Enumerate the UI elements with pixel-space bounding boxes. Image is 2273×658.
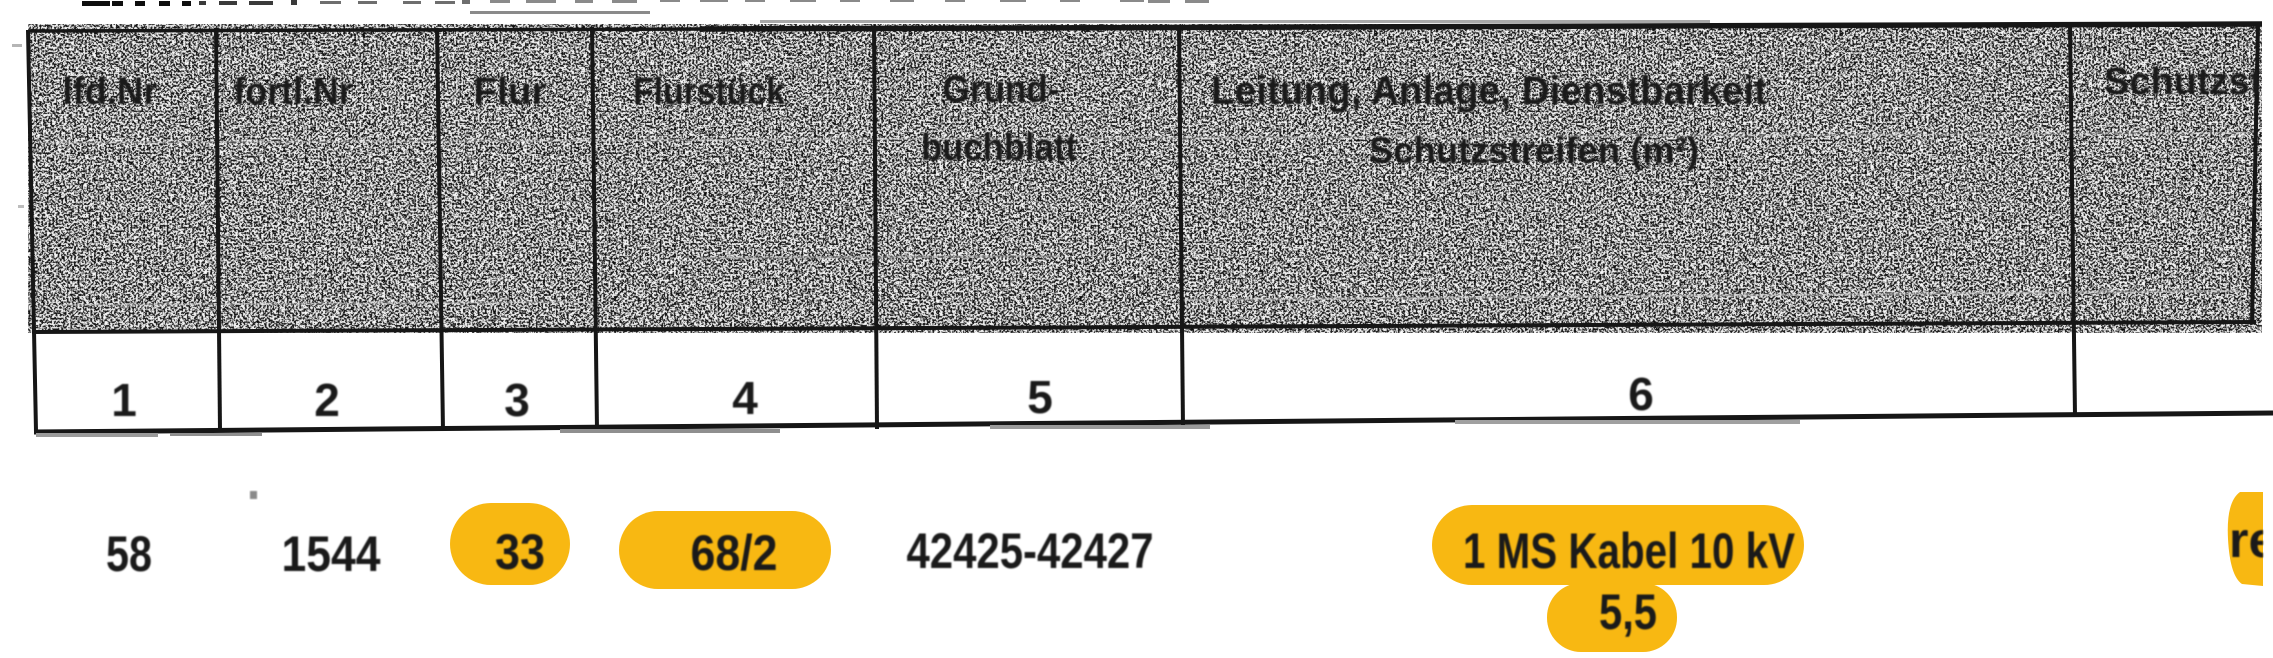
svg-text:Flurstück: Flurstück bbox=[633, 71, 786, 113]
svg-text:Leitung, Anlage, Dienstbarkeit: Leitung, Anlage, Dienstbarkeit bbox=[1211, 69, 1767, 113]
svg-text:Schutzstre: Schutzstre bbox=[2104, 61, 2273, 103]
svg-text:5: 5 bbox=[1027, 371, 1053, 423]
svg-text:rec: rec bbox=[2229, 512, 2273, 568]
svg-text:2: 2 bbox=[314, 374, 340, 426]
svg-text:42425-42427: 42425-42427 bbox=[907, 523, 1154, 579]
svg-text:Schutzstreifen (m²): Schutzstreifen (m²) bbox=[1369, 130, 1699, 171]
svg-text:fortl.Nr: fortl.Nr bbox=[234, 71, 353, 113]
svg-text:33: 33 bbox=[495, 524, 545, 580]
svg-text:1 MS Kabel 10 kV: 1 MS Kabel 10 kV bbox=[1463, 523, 1796, 579]
svg-text:5,5: 5,5 bbox=[1599, 584, 1657, 640]
svg-text:lfd.Nr: lfd.Nr bbox=[63, 71, 158, 113]
svg-text:68/2: 68/2 bbox=[691, 525, 778, 581]
svg-text:58: 58 bbox=[106, 526, 152, 582]
svg-text:1544: 1544 bbox=[282, 526, 381, 582]
svg-text:1: 1 bbox=[111, 374, 137, 426]
svg-text:4: 4 bbox=[732, 372, 758, 424]
svg-text:3: 3 bbox=[504, 374, 530, 426]
svg-text:Grund-: Grund- bbox=[943, 69, 1060, 111]
svg-text:Flur: Flur bbox=[474, 71, 547, 113]
svg-text:6: 6 bbox=[1628, 368, 1654, 420]
svg-text:buchblatt: buchblatt bbox=[921, 127, 1077, 169]
